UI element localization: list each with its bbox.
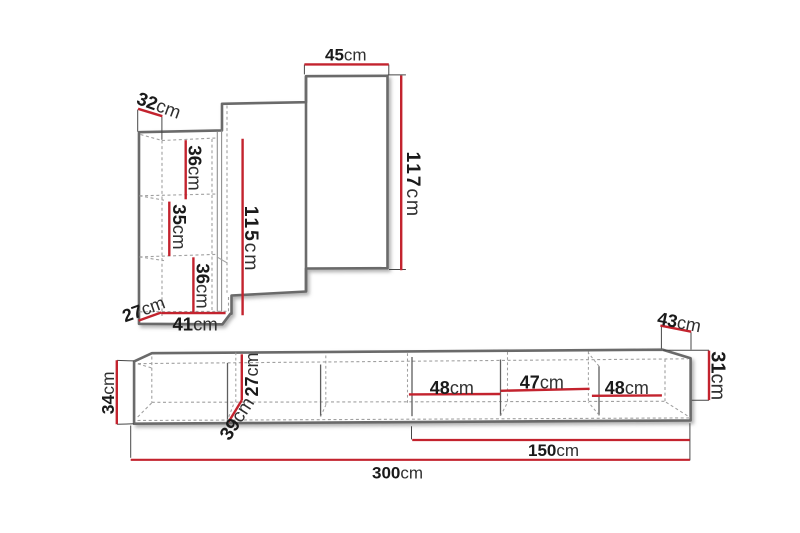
svg-text:31cm: 31cm (707, 351, 729, 400)
svg-text:48cm: 48cm (430, 378, 474, 398)
svg-text:117cm: 117cm (402, 152, 424, 218)
svg-text:34cm: 34cm (98, 371, 118, 414)
svg-text:150cm: 150cm (528, 441, 579, 460)
svg-text:47cm: 47cm (520, 372, 564, 392)
svg-text:48cm: 48cm (605, 378, 649, 398)
svg-text:27cm: 27cm (242, 352, 262, 396)
svg-text:300cm: 300cm (372, 463, 423, 482)
svg-text:36cm: 36cm (192, 263, 213, 308)
svg-text:45cm: 45cm (325, 45, 367, 64)
svg-text:115cm: 115cm (240, 206, 262, 272)
svg-text:36cm: 36cm (185, 145, 206, 190)
svg-text:35cm: 35cm (169, 204, 190, 249)
svg-text:41cm: 41cm (173, 313, 218, 334)
